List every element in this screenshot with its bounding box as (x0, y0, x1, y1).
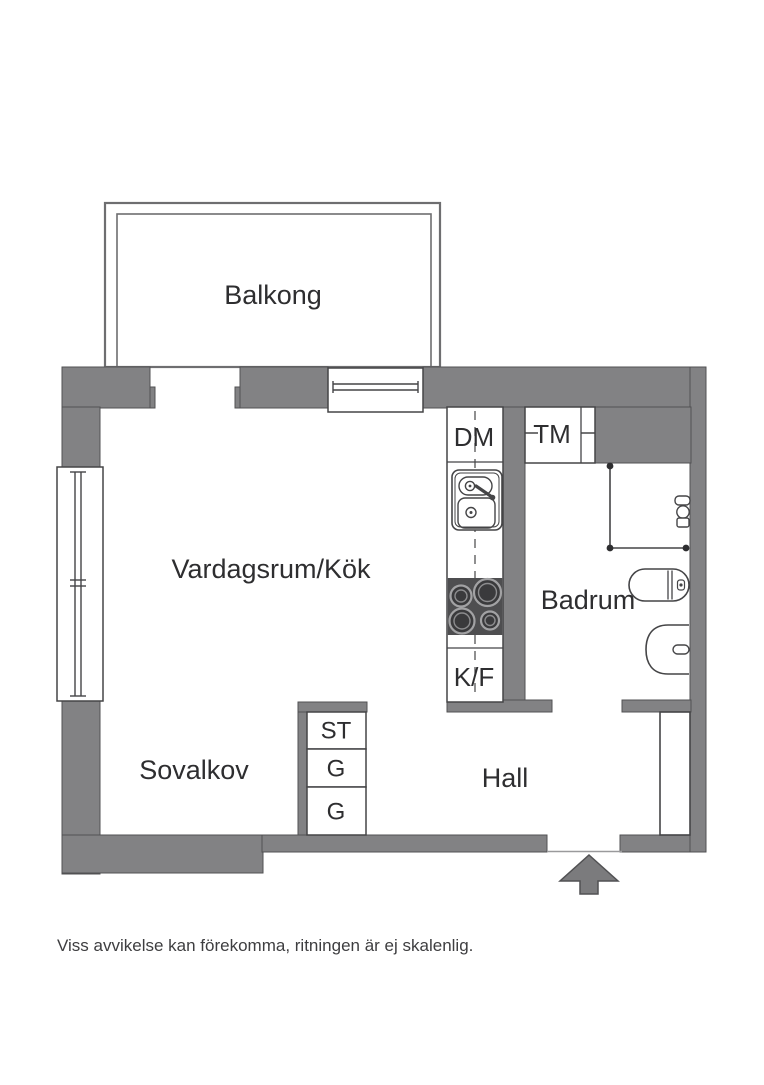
shower-mixer-icon (675, 496, 690, 527)
label-cleaning-closet: ST (321, 718, 352, 745)
label-fridge-freezer: K/F (454, 662, 494, 692)
label-washing-machine: TM (533, 419, 571, 449)
window-balcony (328, 368, 423, 412)
window-left (57, 467, 103, 701)
floorplan-page: Balkong Vardagsrum/Kök Sovalkov Hall Bad… (0, 0, 764, 1080)
walls (62, 367, 706, 874)
room-label-hall: Hall (482, 763, 529, 793)
room-label-sleeping-alcove: Sovalkov (139, 755, 249, 785)
floorplan-canvas: Balkong Vardagsrum/Kök Sovalkov Hall Bad… (0, 0, 764, 1080)
room-label-bathroom: Badrum (541, 585, 636, 615)
disclaimer-text: Viss avvikelse kan förekomma, ritningen … (57, 936, 473, 955)
hall-cabinet (660, 712, 690, 835)
label-dishwasher: DM (454, 422, 494, 452)
label-wardrobe-top: G (327, 756, 346, 783)
stove (448, 578, 503, 635)
label-wardrobe-bottom: G (327, 799, 346, 826)
kitchen-sink (452, 470, 502, 530)
washbasin (646, 625, 689, 674)
entrance-arrow-icon (560, 855, 618, 894)
toilet (629, 569, 689, 601)
shower (607, 463, 690, 552)
room-label-balcony: Balkong (224, 280, 322, 310)
room-label-living-kitchen: Vardagsrum/Kök (171, 554, 371, 584)
